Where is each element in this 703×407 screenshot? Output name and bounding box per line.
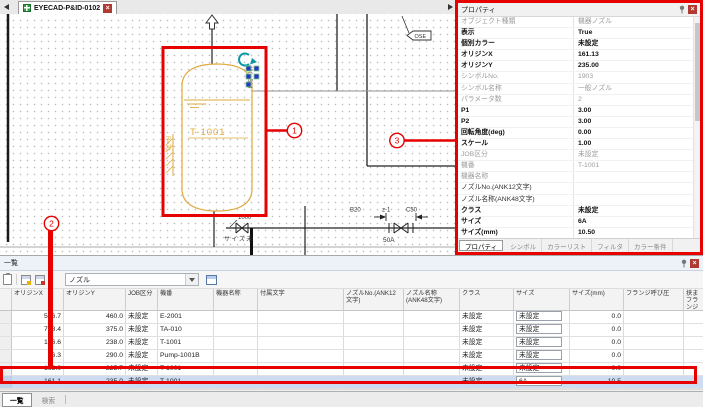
cell-size-mm[interactable]: 0.0 xyxy=(570,363,624,375)
property-value[interactable] xyxy=(574,195,693,205)
property-label: オブジェクト種類 xyxy=(458,17,574,27)
nozzle-filter-combo[interactable]: ノズル xyxy=(65,273,199,286)
cell-origin-y[interactable]: 238.0 xyxy=(64,337,126,349)
header-size[interactable]: サイズ xyxy=(514,289,570,311)
grip-handle[interactable] xyxy=(246,74,251,79)
cell-class[interactable]: 未設定 xyxy=(460,311,514,323)
property-value[interactable]: 一般ノズル xyxy=(574,84,693,94)
size-combo[interactable]: 未設定 xyxy=(516,350,562,360)
grip-handle[interactable] xyxy=(246,82,251,87)
property-value[interactable]: 235.00 xyxy=(574,61,693,71)
property-label: 個別カラー xyxy=(458,39,574,49)
cell-size-mm[interactable]: 0.0 xyxy=(570,350,624,362)
properties-close-icon[interactable]: × xyxy=(688,5,697,14)
cell-equip-no[interactable]: Pump-1001B xyxy=(158,350,214,362)
property-label: シンボル名称 xyxy=(458,84,574,94)
scroll-tabs-left-icon[interactable] xyxy=(4,4,9,10)
cell-nozzle-name[interactable] xyxy=(404,311,460,323)
property-row[interactable]: サイズ(mm)10.50 xyxy=(458,228,693,238)
cell-class[interactable]: 未設定 xyxy=(460,350,514,362)
cell-origin-y[interactable]: 375.0 xyxy=(64,324,126,336)
property-value[interactable]: T-1001 xyxy=(574,161,693,171)
header-row-selector xyxy=(0,289,12,311)
cell-nozzle-name[interactable] xyxy=(404,363,460,375)
header-class[interactable]: クラス xyxy=(460,289,514,311)
property-row[interactable]: サイズ6A xyxy=(458,217,693,228)
property-row[interactable]: JOB区分未設定 xyxy=(458,150,693,161)
pin-icon[interactable] xyxy=(680,259,688,268)
properties-title: プロパティ xyxy=(461,5,678,15)
cell-nozzle-no[interactable] xyxy=(344,324,404,336)
property-row[interactable]: 機番T-1001 xyxy=(458,161,693,172)
size-combo[interactable]: 6A xyxy=(516,376,562,386)
tab-symbol[interactable]: シンボル xyxy=(505,239,542,252)
property-value[interactable] xyxy=(574,172,693,182)
cell-nozzle-no[interactable] xyxy=(344,363,404,375)
callout-3-number: 3 xyxy=(395,136,400,146)
row-selector[interactable] xyxy=(684,363,703,375)
property-label: サイズ(mm) xyxy=(458,228,574,238)
drawing-file-icon xyxy=(23,4,31,12)
list-row[interactable]: 768.4375.0未設定TA-010未設定未設定0.0 xyxy=(0,324,703,337)
pid-drawing: 1000 サイズ未 B20 z-1 C50 50A OSE T-1001 400… xyxy=(0,14,455,255)
property-value[interactable]: 10.50 xyxy=(574,228,693,238)
rotate-handle-icon[interactable] xyxy=(239,54,249,66)
cell-origin-x[interactable]: 768.4 xyxy=(12,324,64,336)
header-job[interactable]: JOB区分 xyxy=(126,289,158,311)
property-value[interactable] xyxy=(574,183,693,193)
size-combo[interactable]: 未設定 xyxy=(516,324,562,334)
document-tab-label: EYECAD-P&ID-0102 xyxy=(34,5,100,12)
property-value[interactable]: 2 xyxy=(574,95,693,105)
list-panel: 一覧 × ノズル オリジンX オリジンY JOB区分 機番 機器名称 付属文字 … xyxy=(0,255,703,391)
cell-attached-text[interactable] xyxy=(258,350,344,362)
cell-size-mm[interactable]: 0.0 xyxy=(570,311,624,323)
properties-scrollbar-thumb[interactable] xyxy=(695,23,700,121)
property-row[interactable]: P23.00 xyxy=(458,117,693,128)
cell-equip-no[interactable]: T-1001 xyxy=(158,337,214,349)
property-row[interactable]: オブジェクト種類機器ノズル xyxy=(458,17,693,28)
cell-origin-x[interactable]: 146.6 xyxy=(12,337,64,349)
row-selector[interactable] xyxy=(684,376,703,388)
flow-arrow-icon xyxy=(206,15,218,29)
property-row[interactable]: 表示True xyxy=(458,28,693,39)
remove-item-icon[interactable] xyxy=(35,275,45,285)
property-row[interactable]: シンボルNo.1903 xyxy=(458,72,693,83)
cell-equip-no[interactable]: T-1001 xyxy=(158,376,214,388)
dimension-arrow-left xyxy=(380,215,386,220)
cell-size-mm[interactable]: 0.0 xyxy=(570,324,624,336)
row-selector[interactable] xyxy=(684,324,703,336)
nozzle-filter-value: ノズル xyxy=(66,275,185,285)
header-origin-x[interactable]: オリジンX xyxy=(12,289,64,311)
property-row[interactable]: クラス未設定 xyxy=(458,206,693,217)
property-value[interactable]: 161.13 xyxy=(574,50,693,60)
pane-expand-icon[interactable] xyxy=(448,4,453,10)
tab-color-list[interactable]: カラーリスト xyxy=(542,239,592,252)
property-value[interactable]: True xyxy=(574,28,693,38)
header-nozzle-no[interactable]: ノズルNo.(ANK12文字) xyxy=(344,289,404,311)
cell-attached-text[interactable] xyxy=(258,363,344,375)
callout-2-number: 2 xyxy=(49,219,54,229)
document-tab[interactable]: EYECAD-P&ID-0102 × xyxy=(18,1,117,14)
dim-label-z1: z-1 xyxy=(382,208,391,214)
cell-flange-rating[interactable] xyxy=(624,311,684,323)
property-row[interactable]: オリジンX161.13 xyxy=(458,50,693,61)
cell-nozzle-no[interactable] xyxy=(344,337,404,349)
row-selector[interactable] xyxy=(684,337,703,349)
cell-class[interactable]: 未設定 xyxy=(460,376,514,388)
tab-list[interactable]: 一覧 xyxy=(2,393,32,407)
cell-nozzle-name[interactable] xyxy=(404,337,460,349)
property-label: パラメータ数 xyxy=(458,95,574,105)
property-label: 回転角度(deg) xyxy=(458,128,574,138)
cell-origin-x[interactable]: 161.1 xyxy=(12,376,64,388)
cell-job[interactable]: 未設定 xyxy=(126,311,158,323)
properties-scrollbar[interactable] xyxy=(693,17,700,238)
dim-label-c50: C50 xyxy=(406,208,418,214)
cell-origin-x[interactable]: 96.3 xyxy=(12,350,64,362)
cell-size[interactable]: 6A xyxy=(514,376,570,388)
property-value[interactable]: 6A xyxy=(574,217,693,227)
cell-nozzle-name[interactable] xyxy=(404,350,460,362)
cell-attached-text[interactable] xyxy=(258,337,344,349)
property-row[interactable]: ノズル名称(ANK48文字) xyxy=(458,195,693,206)
cell-size[interactable]: 未設定 xyxy=(514,311,570,323)
flag-leader-line xyxy=(402,16,409,33)
size-combo[interactable]: 未設定 xyxy=(516,337,562,347)
cell-size-mm[interactable]: 0.0 xyxy=(570,337,624,349)
list-row[interactable]: 96.3290.0未設定Pump-1001B未設定未設定0.0 xyxy=(0,350,703,363)
row-selector[interactable] xyxy=(0,363,12,375)
property-label: 機番 xyxy=(458,161,574,171)
property-label: P2 xyxy=(458,117,574,127)
tab-search[interactable]: 検索 xyxy=(35,394,63,406)
callout-2-line xyxy=(48,230,53,368)
row-selector[interactable] xyxy=(0,324,12,336)
tab-color-condition[interactable]: カラー条件 xyxy=(629,239,673,252)
valve-size-label: 50A xyxy=(383,237,395,244)
property-row[interactable]: ノズルNo.(ANK12文字) xyxy=(458,183,693,194)
cell-equip-name[interactable] xyxy=(214,324,258,336)
grip-handle[interactable] xyxy=(254,66,259,71)
list-rows: 576.7460.0未設定E-2001未設定未設定0.0768.4375.0未設… xyxy=(0,311,703,389)
property-label: シンボルNo. xyxy=(458,72,574,82)
cell-size[interactable]: 未設定 xyxy=(514,350,570,362)
property-row[interactable]: 機器名称 xyxy=(458,172,693,183)
property-label: スケール xyxy=(458,139,574,149)
cell-equip-name[interactable] xyxy=(214,376,258,388)
selection-grips[interactable] xyxy=(239,54,259,87)
properties-title-bar: プロパティ × xyxy=(458,3,700,17)
tank-symbol[interactable]: T-1001 400×504 R=70 xyxy=(164,64,252,211)
header-size-mm[interactable]: サイズ(mm) xyxy=(570,289,624,311)
cell-flange-rating[interactable] xyxy=(624,363,684,375)
header-equip-name[interactable]: 機器名称 xyxy=(214,289,258,311)
size-combo[interactable]: 未設定 xyxy=(516,311,562,321)
list-title-bar: 一覧 × xyxy=(0,256,703,271)
property-row[interactable]: 個別カラー未設定 xyxy=(458,39,693,50)
cell-origin-y[interactable]: 290.0 xyxy=(64,350,126,362)
callout-1-number: 1 xyxy=(292,126,297,136)
property-label: 機器名称 xyxy=(458,172,574,182)
tab-properties[interactable]: プロパティ xyxy=(459,240,503,251)
flag-label: OSE xyxy=(415,34,427,40)
cell-attached-text[interactable] xyxy=(258,311,344,323)
cell-size-mm[interactable]: 10.5 xyxy=(570,376,624,388)
cell-nozzle-no[interactable] xyxy=(344,376,404,388)
dimension-ticks xyxy=(386,213,416,221)
header-equip-no[interactable]: 機番 xyxy=(158,289,214,311)
cell-class[interactable]: 未設定 xyxy=(460,363,514,375)
list-title: 一覧 xyxy=(4,258,680,268)
cell-size[interactable]: 未設定 xyxy=(514,363,570,375)
property-value[interactable]: 機器ノズル xyxy=(574,17,693,27)
property-label: P1 xyxy=(458,106,574,116)
row-selector[interactable] xyxy=(684,311,703,323)
property-label: 表示 xyxy=(458,28,574,38)
cell-origin-y[interactable]: 460.0 xyxy=(64,311,126,323)
property-value[interactable]: 0.00 xyxy=(574,128,693,138)
header-attached-text[interactable]: 付属文字 xyxy=(258,289,344,311)
tank-tag-label: T-1001 xyxy=(190,127,226,138)
list-row[interactable]: 576.7460.0未設定E-2001未設定未設定0.0 xyxy=(0,311,703,324)
property-row[interactable]: シンボル名称一般ノズル xyxy=(458,84,693,95)
header-flange-thickness[interactable]: 挟まフランジ厚 xyxy=(684,289,703,311)
list-close-icon[interactable]: × xyxy=(690,259,699,268)
cell-nozzle-name[interactable] xyxy=(404,376,460,388)
row-selector[interactable] xyxy=(0,337,12,349)
property-label: ノズルNo.(ANK12文字) xyxy=(458,183,574,193)
row-selector[interactable] xyxy=(0,376,12,388)
list-row[interactable]: 163.0225.7未設定T-1001未設定未設定0.0 xyxy=(0,363,703,376)
add-item-icon[interactable] xyxy=(21,275,31,285)
cell-equip-name[interactable] xyxy=(214,350,258,362)
dimension-arrow-right xyxy=(416,215,422,220)
cell-job[interactable]: 未設定 xyxy=(126,324,158,336)
cell-size[interactable]: 未設定 xyxy=(514,337,570,349)
row-selector[interactable] xyxy=(684,350,703,362)
property-label: JOB区分 xyxy=(458,150,574,160)
apply-list-icon[interactable] xyxy=(206,275,217,285)
cell-job[interactable]: 未設定 xyxy=(126,376,158,388)
property-value[interactable]: 未設定 xyxy=(574,150,693,160)
cell-job[interactable]: 未設定 xyxy=(126,350,158,362)
rotate-handle-arrow xyxy=(250,58,257,65)
property-row[interactable]: P13.00 xyxy=(458,106,693,117)
cell-equip-no[interactable]: T-1001 xyxy=(158,363,214,375)
cell-flange-rating[interactable] xyxy=(624,337,684,349)
row-selector[interactable] xyxy=(0,311,12,323)
cell-equip-name[interactable] xyxy=(214,363,258,375)
property-row[interactable]: スケール1.00 xyxy=(458,139,693,150)
properties-tab-strip: プロパティ シンボル カラーリスト フィルタ カラー条件 xyxy=(458,238,700,252)
property-value[interactable]: 3.00 xyxy=(574,106,693,116)
cell-nozzle-no[interactable] xyxy=(344,311,404,323)
property-label: オリジンX xyxy=(458,50,574,60)
cell-nozzle-name[interactable] xyxy=(404,324,460,336)
row-selector[interactable] xyxy=(0,350,12,362)
property-label: ノズル名称(ANK48文字) xyxy=(458,195,574,205)
property-value[interactable]: 未設定 xyxy=(574,206,693,216)
tab-separator xyxy=(65,395,66,404)
cell-equip-name[interactable] xyxy=(214,337,258,349)
cell-flange-rating[interactable] xyxy=(624,324,684,336)
list-row[interactable]: 146.6238.0未設定T-1001未設定未設定0.0 xyxy=(0,337,703,350)
size-combo[interactable]: 未設定 xyxy=(516,363,562,373)
grip-handle[interactable] xyxy=(254,74,259,79)
cell-class[interactable]: 未設定 xyxy=(460,324,514,336)
list-toolbar: ノズル xyxy=(0,271,703,289)
header-nozzle-name[interactable]: ノズル名称(ANK48文字) xyxy=(404,289,460,311)
cell-nozzle-no[interactable] xyxy=(344,350,404,362)
support-label: R=70 xyxy=(164,136,170,151)
bottom-tab-strip: 一覧 検索 xyxy=(0,391,703,407)
cell-job[interactable]: 未設定 xyxy=(126,337,158,349)
cell-attached-text[interactable] xyxy=(258,376,344,388)
header-origin-y[interactable]: オリジンY xyxy=(64,289,126,311)
drawing-canvas[interactable]: 1000 サイズ未 B20 z-1 C50 50A OSE T-1001 400… xyxy=(0,14,455,255)
header-flange-rating[interactable]: フランジ呼び圧 xyxy=(624,289,684,311)
dim-label-b20: B20 xyxy=(350,208,361,214)
property-value[interactable]: 1.00 xyxy=(574,139,693,149)
cell-class[interactable]: 未設定 xyxy=(460,337,514,349)
grip-handle[interactable] xyxy=(246,66,251,71)
property-row[interactable]: オリジンY235.00 xyxy=(458,61,693,72)
cell-size[interactable]: 未設定 xyxy=(514,324,570,336)
cell-origin-x[interactable]: 163.0 xyxy=(12,363,64,375)
cell-flange-rating[interactable] xyxy=(624,350,684,362)
list-header-row: オリジンX オリジンY JOB区分 機番 機器名称 付属文字 ノズルNo.(AN… xyxy=(0,289,703,311)
tab-filter[interactable]: フィルタ xyxy=(592,239,629,252)
properties-panel: プロパティ × オブジェクト種類機器ノズル表示True個別カラー未設定オリジンX… xyxy=(455,0,703,255)
property-label: オリジンY xyxy=(458,61,574,71)
size-note-label: サイズ未 xyxy=(224,235,254,243)
chevron-down-icon xyxy=(189,278,195,282)
list-row[interactable]: 161.1235.0未設定T-1001未設定6A10.5 xyxy=(0,376,703,389)
combo-dropdown-button[interactable] xyxy=(185,274,198,285)
document-tab-close-icon[interactable]: × xyxy=(103,4,112,13)
document-tab-bar: EYECAD-P&ID-0102 × xyxy=(0,0,455,15)
cell-origin-x[interactable]: 576.7 xyxy=(12,311,64,323)
cell-flange-rating[interactable] xyxy=(624,376,684,388)
cell-attached-text[interactable] xyxy=(258,324,344,336)
property-value[interactable]: 3.00 xyxy=(574,117,693,127)
properties-grid: オブジェクト種類機器ノズル表示True個別カラー未設定オリジンX161.13オリ… xyxy=(458,17,700,238)
property-row[interactable]: パラメータ数2 xyxy=(458,95,693,106)
property-label: クラス xyxy=(458,206,574,216)
cell-origin-y[interactable]: 225.7 xyxy=(64,363,126,375)
cell-job[interactable]: 未設定 xyxy=(126,363,158,375)
property-value[interactable]: 未設定 xyxy=(574,39,693,49)
cell-equip-name[interactable] xyxy=(214,311,258,323)
cell-equip-no[interactable]: E-2001 xyxy=(158,311,214,323)
clipboard-icon[interactable] xyxy=(3,274,12,285)
property-value[interactable]: 1903 xyxy=(574,72,693,82)
toolbar-separator xyxy=(16,274,17,285)
cell-equip-no[interactable]: TA-010 xyxy=(158,324,214,336)
pin-icon[interactable] xyxy=(678,5,686,14)
cell-origin-y[interactable]: 235.0 xyxy=(64,376,126,388)
property-label: サイズ xyxy=(458,217,574,227)
property-row[interactable]: 回転角度(deg)0.00 xyxy=(458,128,693,139)
